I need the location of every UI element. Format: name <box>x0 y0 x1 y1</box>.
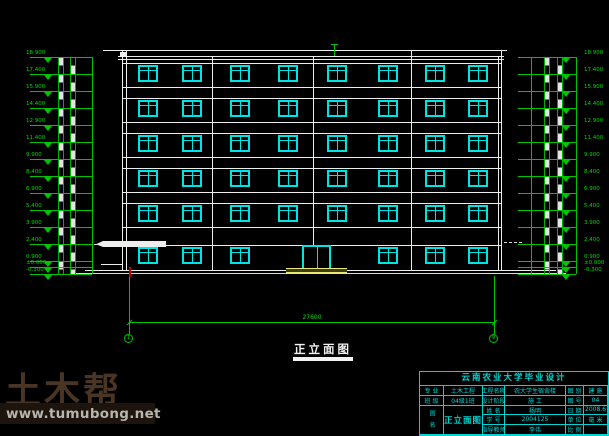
window-mullion <box>288 67 289 80</box>
elevation-marker-triangle <box>44 228 52 233</box>
window <box>182 135 202 152</box>
window <box>425 100 445 117</box>
window <box>425 247 445 264</box>
elevation-marker-line <box>30 159 92 160</box>
elevation-marker-triangle <box>562 160 570 165</box>
window-mullion <box>478 207 479 220</box>
window <box>230 170 250 187</box>
roof-vent-tick-top <box>331 44 338 45</box>
dim-boundary-line <box>531 57 532 274</box>
facade-line <box>123 168 501 169</box>
window-mullion <box>240 137 241 150</box>
dim-chain <box>544 57 550 274</box>
dim-chain <box>70 57 76 274</box>
window-mullion <box>192 137 193 150</box>
elevation-value: 15.900 <box>584 84 608 90</box>
window-mullion <box>148 137 149 150</box>
window <box>378 170 398 187</box>
elevation-value: 12.900 <box>584 118 608 124</box>
tb-value-class: 04级1班 <box>444 396 483 406</box>
window-mullion <box>148 172 149 185</box>
tb-label-advisor: 指导教师 <box>483 425 505 435</box>
tb-label-date: 日 期 <box>566 406 584 416</box>
elevation-value: 5.400 <box>584 203 608 209</box>
window-mullion <box>240 67 241 80</box>
facade-line <box>103 50 507 51</box>
window <box>138 247 158 264</box>
window <box>425 170 445 187</box>
elevation-marker-triangle <box>562 109 570 114</box>
dim-chain <box>557 57 563 274</box>
elevation-value: ±0.000 <box>584 260 608 266</box>
title-block-grid: 专 业 土木工程 工程名称 农大学生宿舍楼 图 别 建 施 班 级 04级1班 … <box>420 386 608 435</box>
tb-value-date: 2008.6 <box>584 406 608 416</box>
window-mullion <box>337 137 338 150</box>
elevation-marker-line <box>30 108 92 109</box>
elevation-value: 2.400 <box>584 237 608 243</box>
window-mullion <box>192 67 193 80</box>
title-block-header: 云南农业大学毕业设计 <box>420 372 608 386</box>
window-mullion <box>435 67 436 80</box>
tb-label-class: 班 级 <box>420 396 444 406</box>
parapet-tick <box>411 50 412 56</box>
window <box>378 100 398 117</box>
window-mullion <box>192 249 193 262</box>
window-mullion <box>388 207 389 220</box>
column-line <box>212 56 213 270</box>
window <box>278 205 298 222</box>
window <box>230 65 250 82</box>
window-mullion <box>478 137 479 150</box>
elevation-marker-line <box>30 91 92 92</box>
window <box>138 100 158 117</box>
elevation-value: 17.400 <box>584 67 608 73</box>
tb-label-stage: 设计阶段 <box>483 396 505 406</box>
elevation-marker-line <box>30 125 92 126</box>
window <box>468 170 488 187</box>
elevation-marker-triangle <box>44 275 52 280</box>
window <box>327 205 347 222</box>
tb-label-sheetno: 图 号 <box>566 396 584 406</box>
tb-value-project: 农大学生宿舍楼 <box>505 386 566 396</box>
elevation-marker-triangle <box>44 109 52 114</box>
window-mullion <box>337 207 338 220</box>
tb-value-unit: 毫 米 <box>584 415 608 425</box>
window-mullion <box>478 102 479 115</box>
window-mullion <box>240 102 241 115</box>
window <box>378 65 398 82</box>
window <box>278 65 298 82</box>
elevation-marker-triangle <box>562 75 570 80</box>
cad-elevation-drawing: 正立面图 27600 1 9 土木帮 www.tumubong.net 云南农业… <box>0 0 609 436</box>
elevation-value: 9.900 <box>26 152 58 158</box>
window <box>468 100 488 117</box>
tb-value-stage: 施 工 <box>505 396 566 406</box>
elevation-marker-triangle <box>44 126 52 131</box>
window-mullion <box>435 172 436 185</box>
entrance-door <box>302 245 331 270</box>
facade-line <box>123 98 501 99</box>
window <box>468 65 488 82</box>
elevation-value: -0.300 <box>26 267 58 273</box>
window <box>468 247 488 264</box>
elevation-marker-triangle <box>562 143 570 148</box>
axis-bubble-right: 9 <box>489 334 498 343</box>
elevation-marker-triangle <box>44 160 52 165</box>
window-mullion <box>337 67 338 80</box>
tb-value-studentid: 2004125 <box>505 415 566 425</box>
window <box>278 135 298 152</box>
window-mullion <box>288 207 289 220</box>
facade-line <box>101 264 123 265</box>
elevation-marker-triangle <box>44 143 52 148</box>
elevation-marker-triangle <box>44 177 52 182</box>
elevation-marker-triangle <box>562 228 570 233</box>
elevation-marker-line <box>30 244 92 245</box>
tb-value-scale <box>584 425 608 435</box>
window <box>230 100 250 117</box>
elevation-marker-triangle <box>562 177 570 182</box>
elevation-marker-line <box>30 227 92 228</box>
column-line <box>122 50 123 270</box>
window-mullion <box>435 137 436 150</box>
window-mullion <box>288 137 289 150</box>
window-mullion <box>240 249 241 262</box>
overall-dim-line <box>129 322 495 323</box>
window-mullion <box>148 249 149 262</box>
window <box>182 100 202 117</box>
window <box>378 135 398 152</box>
window <box>378 205 398 222</box>
window <box>327 65 347 82</box>
elevation-value: 14.400 <box>26 101 58 107</box>
grade-mark-red <box>129 267 131 277</box>
window-mullion <box>148 102 149 115</box>
axis-extension-right <box>494 276 495 334</box>
elevation-value: 15.900 <box>26 84 58 90</box>
elevation-value: 2.400 <box>26 237 58 243</box>
window <box>230 247 250 264</box>
elevation-marker-line <box>30 57 92 58</box>
window-mullion <box>388 137 389 150</box>
tb-value-drawingname: 正立面图 <box>444 406 483 435</box>
elevation-marker-triangle <box>562 126 570 131</box>
roof-vent-tick <box>334 44 335 56</box>
watermark-url-link[interactable]: www.tumubong.net <box>6 406 161 422</box>
canopy <box>96 241 166 247</box>
elevation-marker-line <box>30 210 92 211</box>
window-mullion <box>478 172 479 185</box>
elevation-value: 3.900 <box>26 220 58 226</box>
window-mullion <box>388 249 389 262</box>
window <box>138 135 158 152</box>
window <box>230 135 250 152</box>
elevation-marker-triangle <box>44 245 52 250</box>
elevation-marker-triangle <box>44 58 52 63</box>
elevation-marker-triangle <box>562 194 570 199</box>
dim-chain <box>58 57 64 274</box>
window-mullion <box>337 102 338 115</box>
view-title-underline <box>293 357 353 361</box>
overall-dim-text: 27600 <box>298 314 326 321</box>
window <box>425 205 445 222</box>
window <box>327 100 347 117</box>
elevation-value: 11.400 <box>26 135 58 141</box>
tb-label-major: 专 业 <box>420 386 444 396</box>
window-mullion <box>240 207 241 220</box>
elevation-marker-line <box>30 74 92 75</box>
elevation-value: 18.900 <box>26 50 58 56</box>
window <box>182 247 202 264</box>
window-mullion <box>478 249 479 262</box>
elevation-marker-line <box>30 274 92 275</box>
facade-line <box>123 203 501 204</box>
tb-value-sheetno: 04 <box>584 396 608 406</box>
elevation-marker-triangle <box>562 211 570 216</box>
parapet-cap-left <box>120 52 126 57</box>
dim-boundary-line <box>576 57 577 274</box>
elevation-value: 12.900 <box>26 118 58 124</box>
elevation-marker-line <box>30 193 92 194</box>
elevation-marker-triangle <box>562 268 570 273</box>
elevation-value: 14.400 <box>584 101 608 107</box>
tb-value-category: 建 施 <box>584 386 608 396</box>
tb-label-scale: 比 例 <box>566 425 584 435</box>
tb-value-major: 土木工程 <box>444 386 483 396</box>
elevation-value: 8.400 <box>26 169 58 175</box>
elevation-value: 18.900 <box>584 50 608 56</box>
window-mullion <box>435 207 436 220</box>
elevation-marker-triangle <box>562 92 570 97</box>
door-leaf-split <box>317 247 318 268</box>
window <box>425 135 445 152</box>
window-mullion <box>388 172 389 185</box>
elevation-value: 5.400 <box>26 203 58 209</box>
elevation-value: ±0.000 <box>26 260 58 266</box>
facade-line <box>123 87 501 88</box>
tb-label-project: 工程名称 <box>483 386 505 396</box>
dim-boundary-line <box>92 57 93 274</box>
elevation-marker-triangle <box>562 245 570 250</box>
canopy-dash-right <box>504 242 522 243</box>
axis-extension-left <box>129 270 130 334</box>
window <box>138 65 158 82</box>
window <box>327 135 347 152</box>
elevation-marker-triangle <box>562 275 570 280</box>
tb-label-unit: 单 位 <box>566 415 584 425</box>
window <box>138 205 158 222</box>
column-line <box>501 50 502 270</box>
elevation-value: 8.400 <box>584 169 608 175</box>
window <box>425 65 445 82</box>
facade-line <box>118 59 504 60</box>
facade-line <box>123 63 501 64</box>
window-mullion <box>192 172 193 185</box>
window <box>230 205 250 222</box>
tb-value-advisor: 李伟 <box>505 425 566 435</box>
elevation-value: -0.300 <box>584 267 608 273</box>
column-line <box>126 50 127 270</box>
tb-label-studentid: 学 号 <box>483 415 505 425</box>
facade-line <box>123 192 501 193</box>
window-mullion <box>435 102 436 115</box>
elevation-value: 17.400 <box>26 67 58 73</box>
window-mullion <box>192 102 193 115</box>
window-mullion <box>288 102 289 115</box>
window <box>182 205 202 222</box>
window <box>182 170 202 187</box>
column-line <box>411 56 412 270</box>
window-mullion <box>192 207 193 220</box>
column-line <box>313 56 314 245</box>
window-mullion <box>240 172 241 185</box>
tb-label-name: 姓 名 <box>483 406 505 416</box>
facade-line <box>118 56 504 57</box>
window <box>378 247 398 264</box>
elevation-marker-triangle <box>44 75 52 80</box>
elevation-value: 6.900 <box>26 186 58 192</box>
window <box>278 170 298 187</box>
elevation-marker-line <box>30 142 92 143</box>
window-mullion <box>478 67 479 80</box>
tb-label-drawingname: 图 名 <box>420 406 444 435</box>
window-mullion <box>148 67 149 80</box>
title-block: 云南农业大学毕业设计 专 业 土木工程 工程名称 农大学生宿舍楼 图 别 建 施… <box>419 371 609 436</box>
tb-label-category: 图 别 <box>566 386 584 396</box>
window <box>182 65 202 82</box>
facade-line <box>123 227 501 228</box>
window-mullion <box>388 67 389 80</box>
elevation-value: 11.400 <box>584 135 608 141</box>
view-title: 正立面图 <box>294 341 352 357</box>
window <box>138 170 158 187</box>
elevation-marker-triangle <box>44 211 52 216</box>
window <box>468 135 488 152</box>
window-mullion <box>288 172 289 185</box>
facade-line <box>123 133 501 134</box>
window <box>278 100 298 117</box>
axis-bubble-left: 1 <box>124 334 133 343</box>
elevation-value: 3.900 <box>584 220 608 226</box>
window <box>468 205 488 222</box>
ground-line-yellow <box>72 273 566 274</box>
window-mullion <box>435 249 436 262</box>
window <box>327 170 347 187</box>
window-mullion <box>337 172 338 185</box>
facade-line <box>123 122 501 123</box>
elevation-marker-triangle <box>44 92 52 97</box>
elevation-marker-triangle <box>44 194 52 199</box>
elevation-marker-line <box>30 176 92 177</box>
facade-line <box>123 157 501 158</box>
elevation-value: 6.900 <box>584 186 608 192</box>
window-mullion <box>388 102 389 115</box>
elevation-value: 9.900 <box>584 152 608 158</box>
elevation-marker-triangle <box>562 58 570 63</box>
column-line <box>498 56 499 270</box>
tb-value-name: 杨明 <box>505 406 566 416</box>
window-mullion <box>148 207 149 220</box>
